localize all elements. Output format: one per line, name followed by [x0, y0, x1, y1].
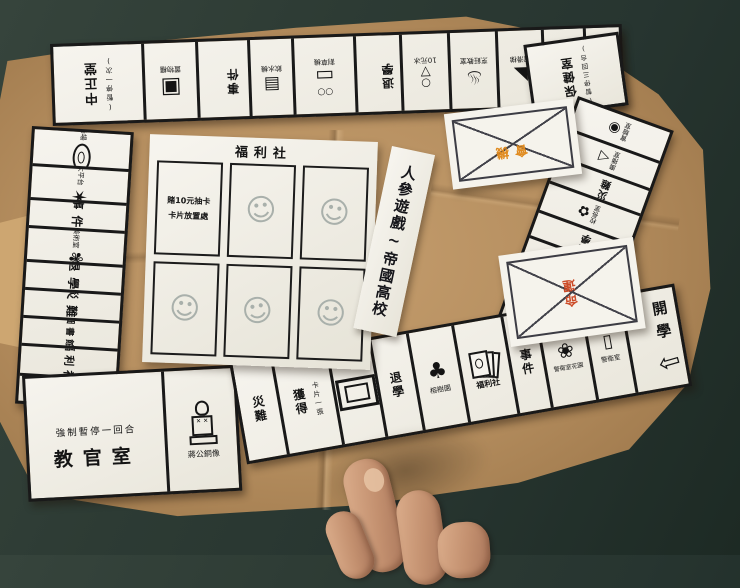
- card-slot: ☺: [150, 261, 219, 357]
- card-slot-draw: 賭10元抽卡 卡片放置處: [154, 160, 223, 256]
- hand-knuckle: [436, 520, 492, 579]
- tile-big-platform: 大平台 ✶: [31, 163, 129, 203]
- tile-caption: 10元冰: [414, 55, 437, 66]
- meme-face-doodle: ☺: [167, 289, 203, 328]
- tile-locker: ▣ 置物櫃: [141, 42, 198, 120]
- tile-label: 事件: [68, 197, 87, 231]
- tile-caption: 警衛室花園: [553, 359, 584, 373]
- meme-face-doodle: ☺: [239, 291, 276, 331]
- tile-caption: 警衛室: [600, 351, 621, 364]
- tile-mower: ○○ ▭ 割草機: [291, 36, 356, 114]
- picture-frame-icon: [334, 374, 379, 411]
- cart-icon: ▭: [315, 66, 335, 87]
- tile-cooking-room: ♨ 烹飪教室: [447, 31, 498, 109]
- meme-face-doodle: ☺: [315, 193, 353, 234]
- welfare-card-sheet: 福利社 賭10元抽卡 卡片放置處 ☺ ☺ ☺ ☺ ☺: [142, 134, 378, 370]
- tile-event: 事件: [195, 40, 250, 118]
- tile-caption: 榕樹園: [429, 383, 451, 396]
- tile-label: 災難: [249, 394, 271, 425]
- chance-xbox: 機會: [452, 106, 575, 182]
- destiny-xbox: 命運: [506, 245, 638, 339]
- tile-caption: 大平台: [74, 164, 85, 186]
- meme-face-doodle: ☺: [244, 192, 279, 230]
- card-slot: ☺: [227, 163, 296, 259]
- corner-name: 開學: [648, 299, 677, 348]
- tile-water-dispenser: ▤ 飲水機: [247, 39, 294, 116]
- tile-caption: 烹飪教室: [459, 54, 487, 65]
- start-arrow-icon: ⇦: [655, 347, 683, 378]
- card-slot: ☺: [223, 263, 292, 359]
- tile-expelled: 退學: [353, 35, 402, 113]
- statue-icon: ✕ ✕: [187, 399, 217, 444]
- running-track-icon: [71, 143, 91, 169]
- tile-caption: 割草機: [314, 56, 335, 67]
- destiny-card-area: 命運: [498, 237, 645, 347]
- board-bottom-left: 強制暫停一回合 教官室 ✕ ✕ 蔣公銅像: [22, 365, 242, 502]
- draw-note-line1: 賭10元抽卡: [167, 194, 210, 206]
- cards-icon: [466, 347, 504, 379]
- tile-ice-cream: ○ ▽ 10元冰: [399, 33, 450, 111]
- draw-note-line2: 卡片放置處: [168, 210, 208, 222]
- destiny-label: 命運: [561, 276, 584, 308]
- card-grid: 賭10元抽卡 卡片放置處 ☺ ☺ ☺ ☺ ☺: [150, 160, 369, 361]
- chance-card-area: 機會: [444, 98, 582, 189]
- tile-caption: 置物櫃: [160, 63, 181, 74]
- corner-name: 保健室: [557, 54, 580, 98]
- card-slot: ☺: [296, 266, 365, 362]
- chance-label: 機會: [492, 127, 533, 160]
- tile-chiang-statue: ✕ ✕ 蔣公銅像: [161, 368, 241, 492]
- corner-note: (暫停一次): [103, 55, 115, 111]
- tile-label: 退學: [386, 370, 408, 401]
- door-icon: ▯: [601, 332, 614, 351]
- flower-icon: ❀: [556, 339, 576, 362]
- tile-label: 圖書館: [63, 315, 78, 349]
- corner-name: 教官室: [53, 440, 141, 472]
- tile-note: 卡片一張: [310, 381, 326, 418]
- tile-zhongzhengtang-corner: (暫停一次) 中正堂: [53, 44, 144, 123]
- tile-caption: 美術室: [71, 227, 82, 249]
- tile-label: 事件: [223, 66, 241, 95]
- ice-cream-cone-icon: ▽: [420, 65, 430, 78]
- ice-cream-icon: ○: [421, 78, 431, 89]
- tile-caption: 操場: [77, 129, 88, 141]
- corner-note: (暫停三回合): [578, 42, 597, 105]
- tile-caption: 蔣公銅像: [188, 447, 221, 460]
- board-left-column: 操場 大平台 ✶ 事件 美術室 ✾ 退學 災難 圖書館 福利社 第一間廁所: [15, 126, 134, 410]
- stove-icon: ♨: [465, 66, 483, 86]
- tile-label: 事件: [516, 347, 538, 378]
- tile-art-room: 美術室 ✾: [27, 225, 125, 265]
- tile-label: 退學: [378, 61, 396, 90]
- card-slot: ☺: [300, 165, 369, 261]
- tree-icon: ♣: [426, 359, 449, 384]
- tile-caption: 飲水機: [261, 62, 282, 73]
- tile-military-office-corner: 強制暫停一回合 教官室: [25, 372, 167, 499]
- locker-icon: ▣: [160, 75, 182, 98]
- corner-name: 中正堂: [82, 61, 103, 107]
- tile-label: 獲得: [290, 387, 312, 418]
- tile-label: 災難: [63, 287, 82, 321]
- tile-label: 退學: [64, 259, 83, 293]
- machine-icon: ▤: [264, 75, 281, 93]
- tile-playground: 操場: [33, 129, 131, 169]
- meme-face-doodle: ☺: [314, 295, 349, 333]
- corner-note: 強制暫停一回合: [55, 421, 136, 439]
